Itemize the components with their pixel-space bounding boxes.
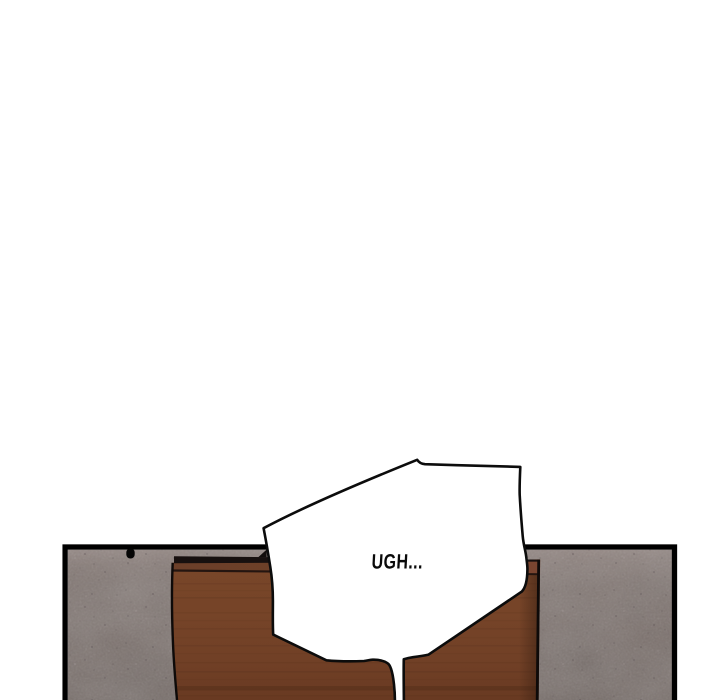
svg-text:UGH...: UGH... xyxy=(371,549,424,573)
